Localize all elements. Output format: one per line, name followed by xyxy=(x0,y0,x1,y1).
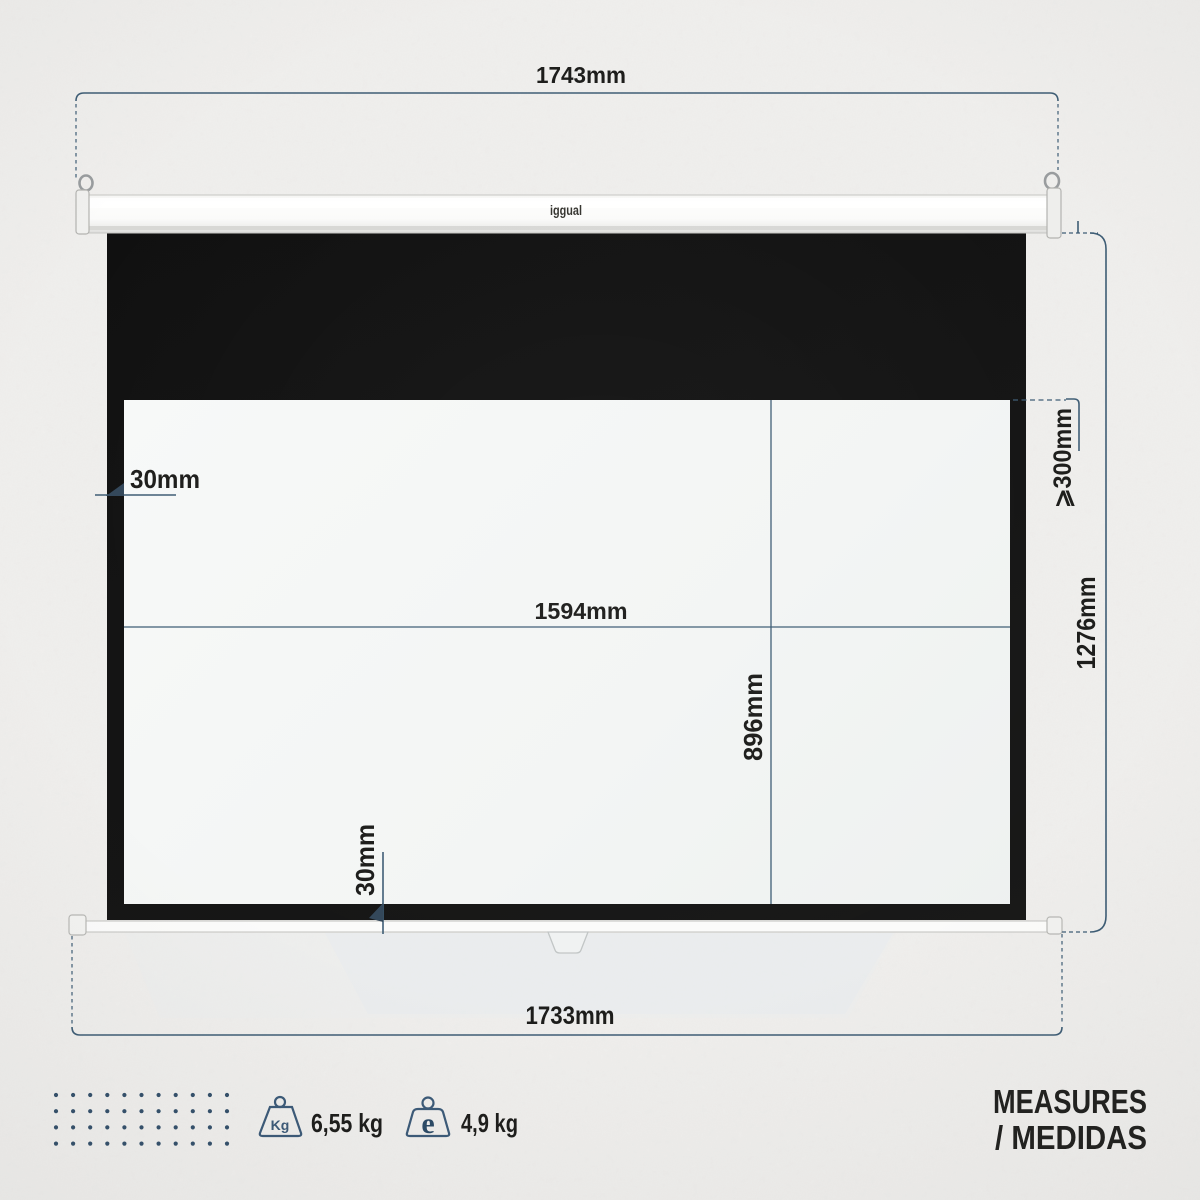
svg-text:4,9 kg: 4,9 kg xyxy=(461,1108,518,1138)
svg-text:MEASURES: MEASURES xyxy=(993,1083,1147,1120)
svg-text:e: e xyxy=(421,1107,434,1140)
svg-text:6,55 kg: 6,55 kg xyxy=(311,1108,383,1138)
svg-text:Kg: Kg xyxy=(271,1117,290,1133)
svg-text:/ MEDIDAS: / MEDIDAS xyxy=(995,1119,1147,1156)
